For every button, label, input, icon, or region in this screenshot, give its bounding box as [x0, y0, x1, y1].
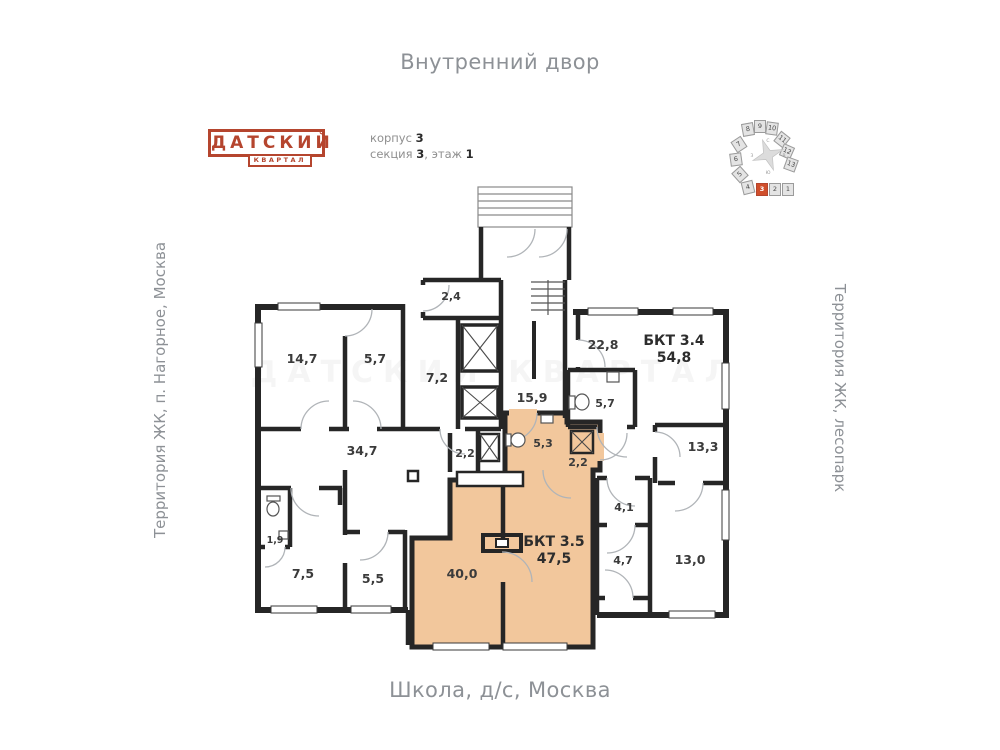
- sekciya-line: секция 3, этаж 1: [370, 146, 474, 162]
- minimap-section-2[interactable]: 2: [769, 183, 781, 196]
- minimap-section-6[interactable]: 6: [729, 152, 743, 167]
- svg-text:З: З: [751, 153, 754, 159]
- floor-meta: корпус 3 секция 3, этаж 1: [370, 130, 474, 162]
- courtyard-label: Внутренний двор: [0, 50, 1000, 74]
- room-label-13-0: 13,0: [675, 552, 706, 567]
- column: [408, 471, 418, 481]
- floor-plan-container: 14,7 5,7 2,4 7,2 15,9 22,8 5,7 5,3 2,2 2…: [245, 185, 745, 665]
- svg-text:БКТ 3.4: БКТ 3.4: [643, 333, 705, 349]
- room-label-22-8: 22,8: [588, 337, 619, 352]
- room-label-2-2-right: 2,2: [568, 456, 588, 469]
- territory-left-label: Территория ЖК, п. Нагорное, Москва: [151, 242, 169, 538]
- brand-logo: ДАТСКИЙ КВАРТАЛ: [208, 129, 325, 157]
- minimap-section-3-highlighted[interactable]: 3: [756, 183, 768, 196]
- svg-text:БКТ 3.5: БКТ 3.5: [523, 534, 584, 550]
- minimap-section-9[interactable]: 9: [754, 120, 766, 133]
- svg-text:В: В: [782, 153, 785, 159]
- room-label-34-7: 34,7: [347, 443, 378, 458]
- floor-plan: 14,7 5,7 2,4 7,2 15,9 22,8 5,7 5,3 2,2 2…: [245, 185, 745, 665]
- room-label-14-7: 14,7: [287, 351, 318, 366]
- staircase: [531, 280, 565, 315]
- entrance-porch: [478, 187, 572, 227]
- stair-rail: [532, 321, 536, 379]
- unit-bkt-3-4-label[interactable]: БКТ 3.4 54,8: [643, 333, 705, 366]
- svg-text:47,5: 47,5: [537, 551, 572, 567]
- room-label-13-3: 13,3: [688, 439, 719, 454]
- minimap-section-1[interactable]: 1: [782, 183, 794, 196]
- svg-text:Ю: Ю: [766, 170, 771, 176]
- room-label-2-4: 2,4: [441, 290, 461, 303]
- korpus-line: корпус 3: [370, 130, 474, 146]
- room-label-5-5: 5,5: [362, 571, 384, 586]
- wall-niche: [457, 472, 523, 486]
- room-label-5-3: 5,3: [533, 437, 553, 450]
- minimap-section-10[interactable]: 10: [765, 121, 779, 136]
- room-label-7-2: 7,2: [426, 370, 448, 385]
- room-label-15-9: 15,9: [517, 390, 548, 405]
- page: { "page": { "top_label": "Внутренний дво…: [0, 0, 1000, 750]
- compass-icon: С В Ю З: [749, 136, 789, 176]
- room-label-5-7-bath: 5,7: [595, 397, 615, 410]
- minimap-section-7[interactable]: 7: [730, 136, 747, 153]
- minimap-section-8[interactable]: 8: [741, 122, 755, 137]
- territory-right-label: Территория ЖК, лесопарк: [831, 284, 849, 492]
- brand-logo-title: ДАТСКИЙ: [211, 132, 322, 155]
- room-label-40-0: 40,0: [447, 566, 478, 581]
- room-label-7-5: 7,5: [292, 566, 314, 581]
- room-label-2-2-left: 2,2: [455, 447, 475, 460]
- brand-logo-subtitle: КВАРТАЛ: [248, 154, 312, 167]
- room-label-4-7: 4,7: [613, 554, 633, 567]
- svg-text:С: С: [766, 138, 769, 144]
- school-label: Школа, д/с, Москва: [0, 678, 1000, 702]
- room-label-5-7-left: 5,7: [364, 351, 386, 366]
- svg-text:54,8: 54,8: [657, 350, 692, 366]
- room-label-4-1: 4,1: [614, 501, 634, 514]
- room-label-1-9: 1,9: [267, 535, 284, 546]
